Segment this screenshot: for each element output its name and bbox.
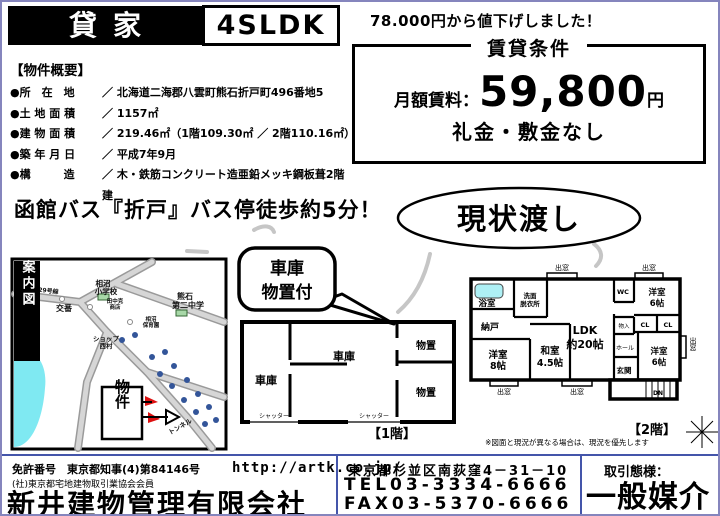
map-panel: 物件 国道229号線 相沼 小学校 熊石 第二中学 交番 田中克 商店 相沼 保… <box>12 228 226 449</box>
fp2-hall-label: ホール <box>616 345 634 352</box>
rent-unit: 円 <box>647 86 664 111</box>
svg-text:約20帖: 約20帖 <box>566 337 603 351</box>
fp1-shutter-center-label: シャッター <box>359 412 389 420</box>
svg-text:6帖: 6帖 <box>652 357 667 368</box>
fp2-floor-label: 【2階】 <box>628 422 676 438</box>
fp2-entrance-label: 玄関 <box>617 365 632 375</box>
footer-divider-1 <box>336 456 338 514</box>
rental-terms-title: 賃貸条件 <box>471 34 587 61</box>
transaction-type-value: 一般媒介 <box>586 472 710 516</box>
fp2-west8-label: 洋室 <box>488 349 508 361</box>
map-side-label: 現地案内図 <box>20 228 37 308</box>
svg-text:保育園: 保育園 <box>142 321 160 329</box>
fp1-storage-top-label: 物置 <box>416 339 436 352</box>
rent-value: 59,800 <box>479 71 647 113</box>
svg-text:小学校: 小学校 <box>95 286 118 296</box>
svg-text:4.5帖: 4.5帖 <box>537 357 564 369</box>
overview-row-land-area: ●土 地 面 積 ／ 1157㎡ <box>10 104 350 125</box>
fp2-closet-room-label: 納戸 <box>481 321 499 333</box>
svg-text:商店: 商店 <box>109 303 121 311</box>
fp1-garage-left-label: 車庫 <box>255 373 277 387</box>
fp1-floor-label: 【1階】 <box>368 426 416 442</box>
map-nursery-label: 相沼 <box>145 315 157 323</box>
rent-label: 月額賃料： <box>394 86 479 111</box>
bubble-line2: 物置付 <box>262 282 313 303</box>
footer: 免許番号 東京都知事(4)第84146号 (社)東京都宅地建物取引業協会会員 新… <box>2 454 718 516</box>
rental-terms-box: 賃貸条件 月額賃料： 59,800 円 礼金・敷金なし <box>352 44 706 164</box>
as-is-badge: 現状渡し <box>398 188 640 248</box>
fp1-garage-center-label: 車庫 <box>333 349 355 363</box>
svg-text:出窓: 出窓 <box>497 387 511 396</box>
fp2-bath-label: 浴室 <box>478 298 496 309</box>
as-is-label: 現状渡し <box>457 202 581 236</box>
fp2-west6-top-label: 洋室 <box>648 287 666 298</box>
fp2-note: ※図面と現況が異なる場合は、現況を優先します <box>485 437 649 447</box>
discount-note: 78.000円から値下げしました！ <box>370 10 601 31</box>
map-store-label: 田中克 <box>107 297 124 305</box>
fp2-baywindow-label: 出窓 <box>555 263 569 272</box>
fp1-storage-bottom-label: 物置 <box>416 386 436 399</box>
fp2-west6-bottom-label: 洋室 <box>650 346 668 357</box>
map-police-label: 交番 <box>56 303 73 313</box>
fax-number: FAX03-5370-6666 <box>344 494 572 514</box>
overview-row-building-area: ●建 物 面 積 ／ 219.46㎡（1階109.30㎡ ／ 2階110.16㎡… <box>10 124 350 145</box>
overview-title: 【物件概要】 <box>10 59 350 79</box>
rent-line: 月額賃料： 59,800 円 <box>355 71 703 113</box>
svg-text:脱衣所: 脱衣所 <box>520 299 540 308</box>
svg-text:8帖: 8帖 <box>490 360 507 372</box>
svg-text:出窓: 出窓 <box>689 336 697 351</box>
svg-text:西村: 西村 <box>100 341 114 350</box>
deposit-note: 礼金・敷金なし <box>355 116 703 145</box>
fp1-shutter-left-label: シャッター <box>259 412 289 420</box>
fp2-dn-label: DN <box>653 390 663 397</box>
svg-text:出窓: 出窓 <box>642 263 656 272</box>
layout-badge: 4SLDK <box>202 5 340 46</box>
company-name: 新井建物管理有限会社 <box>7 483 307 516</box>
fp2-japanese-label: 和室 <box>539 345 560 357</box>
fp2-ldk-label: LDK <box>573 324 598 337</box>
bus-access-note: 函館バス『折戸』バス停徒歩約5分！ <box>14 194 382 224</box>
svg-text:第二中学: 第二中学 <box>172 300 204 310</box>
bubble-line1: 車庫 <box>270 258 304 279</box>
map-junior-label: 熊石 <box>177 291 193 301</box>
overview-row-location: ●所 在 地 ／ 北海道二海郡八雲町熊石折戸町496番地5 <box>10 83 350 104</box>
fp2-bathtub-icon <box>475 284 503 298</box>
flyer-page: 物件 国道229号線 相沼 小学校 熊石 第二中学 交番 田中克 商店 相沼 保… <box>0 0 720 516</box>
fp2-wash-label: 洗面 <box>524 291 538 300</box>
floorplan-1f: シャッター シャッター 車庫 車庫 物置 物置 【1階】 <box>242 322 454 442</box>
footer-divider-2 <box>580 456 582 514</box>
property-type-banner: 貸家 <box>8 6 202 45</box>
compass-icon <box>686 416 718 448</box>
property-overview: 【物件概要】 ●所 在 地 ／ 北海道二海郡八雲町熊石折戸町496番地5 ●土 … <box>10 59 350 206</box>
fp2-monoiri-label: 物入 <box>618 322 630 330</box>
svg-text:出窓: 出窓 <box>570 387 584 396</box>
fp2-cl-left-label: CL <box>641 321 650 329</box>
overview-row-built-date: ●築 年 月 日 ／ 平成7年9月 <box>10 145 350 166</box>
floorplan-2f: 浴室 洗面 脱衣所 納戸 洋室 8帖 和室 4.5帖 LDK 約20帖 WC 洋… <box>471 263 718 448</box>
fp2-cl-right-label: CL <box>664 321 673 329</box>
svg-text:6帖: 6帖 <box>650 298 665 309</box>
license-number: 免許番号 東京都知事(4)第84146号 <box>12 461 200 477</box>
garage-bubble: 車庫 物置付 <box>239 248 394 324</box>
map-property-label: 物件 <box>113 378 131 410</box>
phone-number: TEL03-3334-6666 <box>344 475 570 495</box>
fp2-wc-label: WC <box>617 288 629 296</box>
